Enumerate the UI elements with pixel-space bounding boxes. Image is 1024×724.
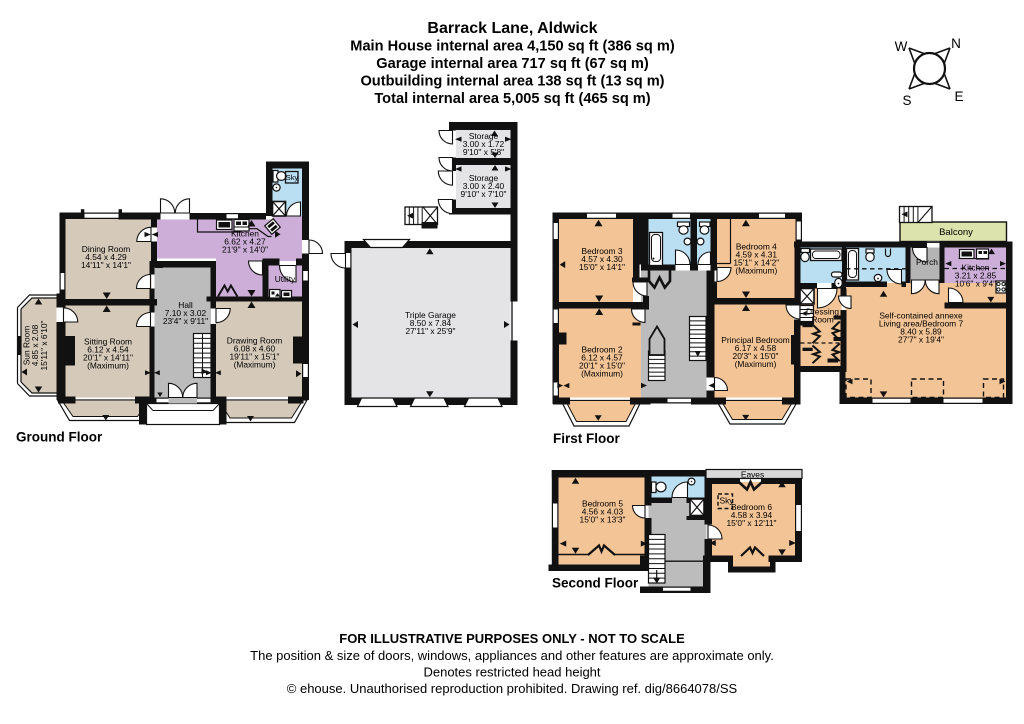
svg-text:15'0" x 13'3": 15'0" x 13'3" (580, 515, 626, 525)
svg-text:23'4" x 9'11": 23'4" x 9'11" (163, 316, 208, 326)
svg-text:W: W (895, 39, 908, 54)
svg-text:Room: Room (811, 315, 833, 325)
svg-text:10'6" x 9'4": 10'6" x 9'4" (955, 278, 996, 288)
svg-text:Main House internal area 4,150: Main House internal area 4,150 sq ft (38… (350, 39, 675, 55)
svg-text:Ground Floor: Ground Floor (16, 430, 103, 445)
svg-text:Utility: Utility (275, 274, 296, 284)
svg-text:(Maximum): (Maximum) (735, 266, 777, 276)
svg-text:FOR ILLUSTRATIVE PURPOSES ONLY: FOR ILLUSTRATIVE PURPOSES ONLY - NOT TO … (339, 631, 685, 646)
svg-text:Balcony: Balcony (939, 227, 973, 238)
svg-text:(Maximum): (Maximum) (735, 359, 777, 369)
svg-text:E: E (954, 89, 963, 104)
svg-text:Sky: Sky (286, 173, 299, 182)
svg-text:N: N (951, 36, 961, 51)
svg-text:(Maximum): (Maximum) (234, 360, 276, 370)
svg-text:(Maximum): (Maximum) (581, 368, 623, 378)
svg-text:Eaves: Eaves (741, 470, 764, 480)
svg-text:Outbuilding internal area 138: Outbuilding internal area 138 sq ft (13 … (360, 74, 664, 90)
svg-text:15'0" x 14'1": 15'0" x 14'1" (579, 262, 625, 272)
svg-text:Porch: Porch (916, 257, 938, 267)
svg-text:27'7" x 19'4": 27'7" x 19'4" (898, 335, 944, 345)
svg-text:21'9" x 14'0": 21'9" x 14'0" (222, 245, 268, 255)
svg-text:First Floor: First Floor (553, 431, 620, 446)
svg-text:Second Floor: Second Floor (552, 576, 639, 591)
svg-text:© ehouse. Unauthorised reprodu: © ehouse. Unauthorised reproduction proh… (287, 681, 738, 696)
svg-text:S: S (902, 93, 911, 108)
svg-text:(Maximum): (Maximum) (87, 361, 129, 371)
svg-text:Total internal area 5,005 sq f: Total internal area 5,005 sq ft (465 sq … (374, 91, 650, 107)
svg-text:Barrack Lane, Aldwick: Barrack Lane, Aldwick (427, 20, 597, 37)
svg-text:Denotes restricted head height: Denotes restricted head height (423, 665, 600, 680)
svg-text:15'0" x 12'11": 15'0" x 12'11" (727, 518, 777, 528)
svg-text:14'11" x 14'1": 14'11" x 14'1" (81, 260, 131, 270)
svg-text:27'11" x 25'9": 27'11" x 25'9" (406, 326, 456, 336)
svg-text:9'10" x 5'8": 9'10" x 5'8" (463, 147, 504, 157)
svg-text:The position & size of doors,: The position & size of doors, windows, a… (250, 648, 774, 663)
svg-text:Garage internal area 717 sq ft: Garage internal area 717 sq ft (67 sq m) (376, 56, 649, 72)
svg-text:15'11" x 6'10": 15'11" x 6'10" (39, 320, 49, 370)
svg-text:9'10" x 7'10": 9'10" x 7'10" (461, 189, 507, 199)
